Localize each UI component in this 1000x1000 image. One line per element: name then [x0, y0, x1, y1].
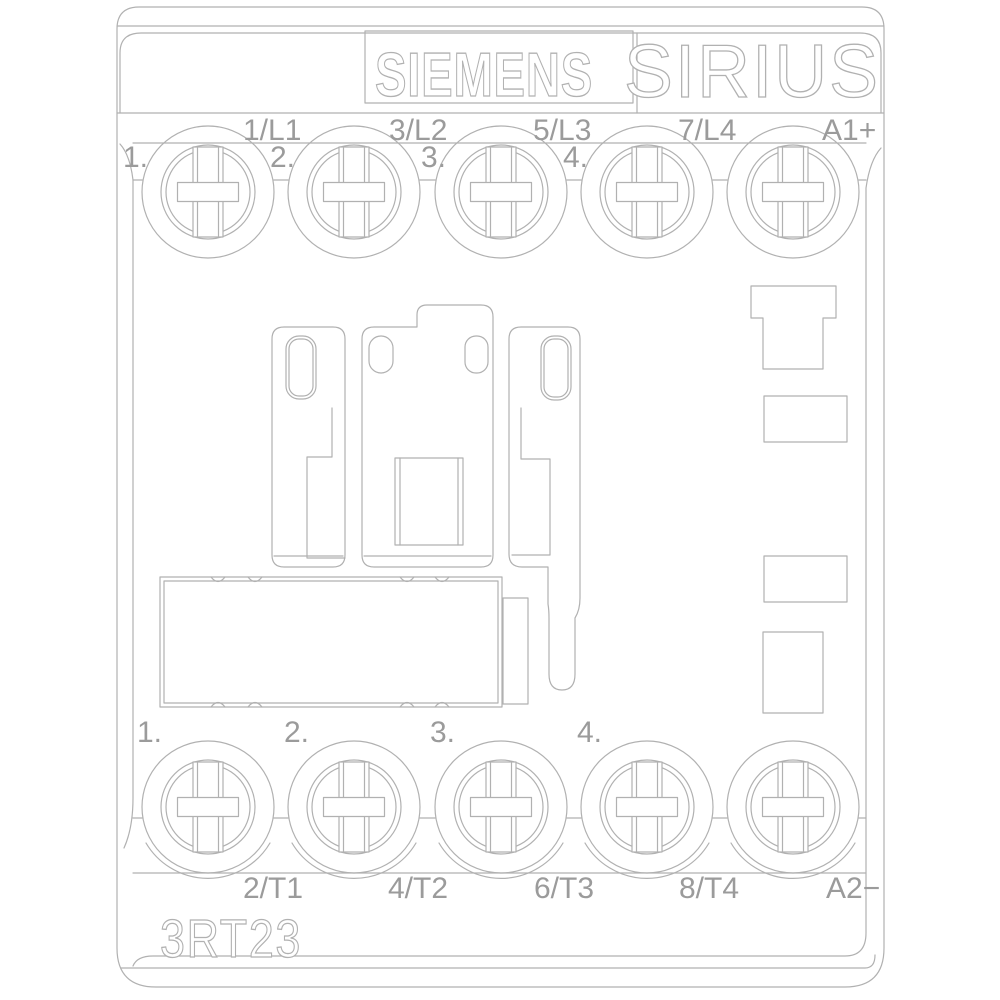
right-side-cutouts — [751, 286, 847, 713]
bottom-terminal-row: 1. 2. 3. 4. 2/T1 4/T2 6/T3 8/T4 A2− — [133, 716, 880, 905]
center-mounting-details — [160, 305, 580, 707]
left-tab-slot — [286, 336, 316, 399]
right-tab-slot — [541, 336, 571, 400]
screw-terminal-2T1 — [142, 741, 274, 873]
cutout-rect-2 — [764, 556, 847, 602]
screw-terminal-A2 — [727, 741, 859, 873]
pole-number-top-1: 1. — [123, 141, 148, 174]
contactor-line-drawing: SIEMENS SIRIUS 1/L1 3/L2 5/L3 7/L4 A1+ 1… — [0, 0, 1000, 1000]
pole-number-bottom-1: 1. — [137, 716, 162, 749]
t-slot-cutout — [751, 286, 836, 369]
top-terminal-row: 1/L1 3/L2 5/L3 7/L4 A1+ 1. 2. 3. 4. — [123, 114, 876, 258]
pole-number-bottom-4: 4. — [577, 716, 602, 749]
screw-terminal-4T2 — [288, 741, 420, 873]
terminal-label-4T2: 4/T2 — [388, 872, 448, 905]
pole-number-top-4: 4. — [563, 141, 588, 174]
cutout-rect-1 — [764, 396, 847, 442]
pole-number-top-3: 3. — [421, 141, 446, 174]
screw-terminal-8T4 — [581, 741, 713, 873]
pole-number-bottom-2: 2. — [284, 716, 309, 749]
terminal-label-8T4: 8/T4 — [679, 872, 739, 905]
pole-number-top-2: 2. — [270, 141, 295, 174]
screw-terminal-6T3 — [435, 741, 567, 873]
terminal-label-2T1: 2/T1 — [243, 872, 303, 905]
terminal-label-A1plus: A1+ — [822, 114, 876, 147]
drawing-svg: SIEMENS SIRIUS 1/L1 3/L2 5/L3 7/L4 A1+ 1… — [0, 0, 1000, 1000]
terminal-label-A2minus: A2− — [826, 872, 880, 905]
model-number-text: 3RT23 — [160, 909, 302, 969]
middle-tab — [362, 305, 493, 567]
terminal-label-7L4: 7/L4 — [678, 114, 736, 147]
series-logo-text: SIRIUS — [624, 29, 880, 113]
terminal-label-6T3: 6/T3 — [534, 872, 594, 905]
middle-tab-slot-left — [369, 336, 393, 373]
plate-latch — [503, 598, 528, 704]
cutout-rect-3 — [763, 632, 823, 713]
brand-logo-text: SIEMENS — [375, 41, 593, 110]
brand-band: SIEMENS SIRIUS — [365, 29, 880, 113]
middle-tab-window — [395, 458, 463, 545]
designation-plate — [160, 577, 502, 707]
pole-number-bottom-3: 3. — [430, 716, 455, 749]
middle-tab-slot-right — [465, 336, 488, 373]
left-tab — [272, 327, 345, 567]
